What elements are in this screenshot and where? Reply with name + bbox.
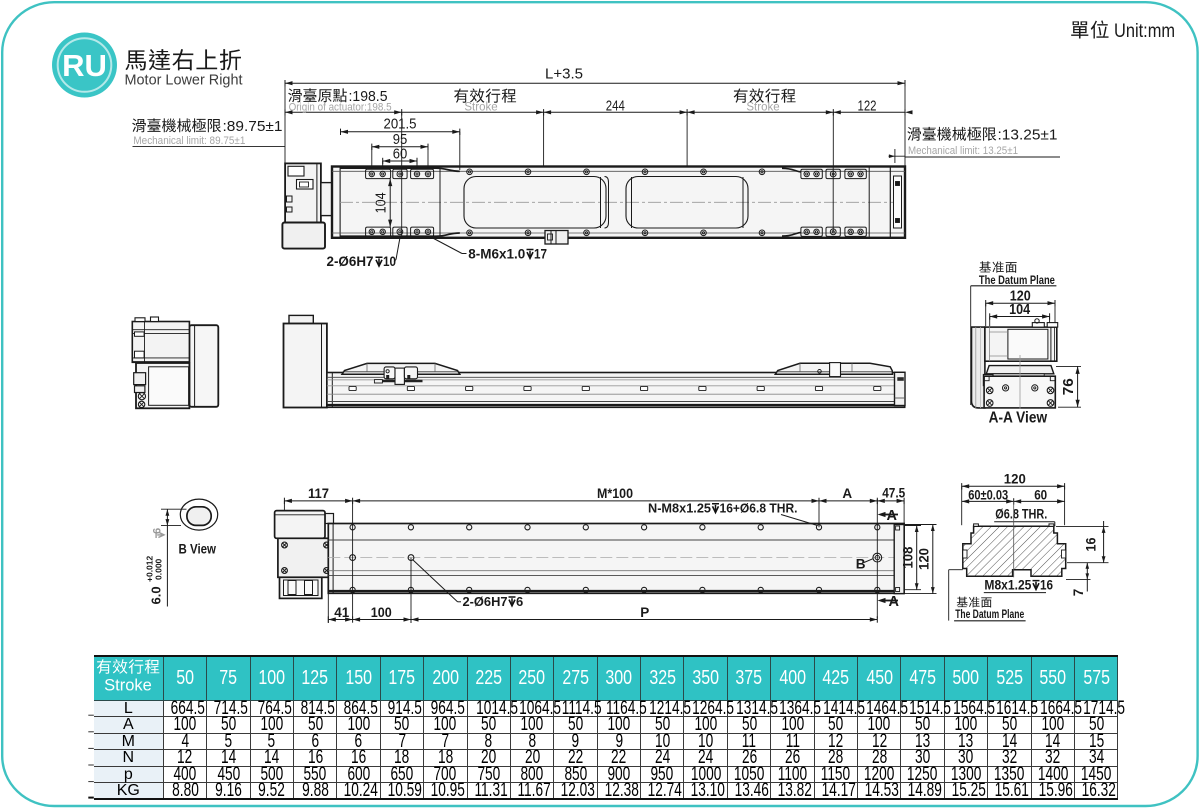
- svg-text:8-M6x1.0: 8-M6x1.0: [468, 246, 525, 261]
- svg-text:0.000: 0.000: [154, 558, 164, 580]
- svg-text:117: 117: [308, 486, 329, 501]
- svg-text:M8x1.25: M8x1.25: [984, 577, 1031, 592]
- svg-text:L+3.5: L+3.5: [545, 66, 583, 83]
- svg-text:RU: RU: [62, 48, 107, 83]
- svg-text:100: 100: [371, 605, 392, 620]
- svg-text:108: 108: [899, 546, 915, 568]
- svg-text:16+Ø6.8 THR.: 16+Ø6.8 THR.: [720, 501, 798, 516]
- svg-text:The Datum Plane: The Datum Plane: [979, 273, 1055, 287]
- svg-text:A-A View: A-A View: [989, 410, 1048, 427]
- svg-text:60±0.03: 60±0.03: [968, 487, 1008, 502]
- svg-text:120: 120: [916, 548, 932, 570]
- svg-text:Unit:mm: Unit:mm: [1114, 20, 1175, 42]
- svg-text:6: 6: [516, 594, 523, 609]
- svg-text:16: 16: [1040, 577, 1053, 592]
- svg-text:A: A: [842, 486, 852, 501]
- svg-text:P: P: [640, 605, 649, 620]
- svg-text:A: A: [887, 508, 898, 524]
- svg-text:122: 122: [858, 98, 877, 115]
- svg-text::89.75±1: :89.75±1: [223, 118, 283, 135]
- svg-text:Stroke: Stroke: [746, 102, 779, 114]
- svg-text:6: 6: [152, 528, 164, 534]
- svg-text:104: 104: [372, 192, 389, 213]
- svg-text:7: 7: [1071, 589, 1086, 597]
- svg-text:47.5: 47.5: [882, 486, 905, 501]
- svg-text:60: 60: [1034, 487, 1047, 502]
- svg-text:6.0: 6.0: [149, 586, 164, 604]
- svg-text:Mechanical limit: 89.75±1: Mechanical limit: 89.75±1: [133, 135, 245, 147]
- svg-text:17: 17: [534, 246, 547, 261]
- svg-text:N-M8x1.25: N-M8x1.25: [648, 501, 711, 516]
- svg-text:Origin of actuator:198.5: Origin of actuator:198.5: [289, 102, 392, 114]
- svg-text:Stroke: Stroke: [104, 677, 152, 695]
- svg-text:Motor Lower Right: Motor Lower Right: [125, 72, 244, 89]
- svg-text:Stroke: Stroke: [464, 102, 497, 114]
- svg-text:104: 104: [1009, 302, 1030, 318]
- svg-text:Mechanical limit: 13.25±1: Mechanical limit: 13.25±1: [908, 145, 1018, 157]
- svg-text:76: 76: [1061, 378, 1077, 395]
- svg-text::13.25±1: :13.25±1: [998, 127, 1058, 144]
- svg-text:244: 244: [606, 98, 625, 115]
- svg-text:A: A: [889, 594, 900, 610]
- svg-text:10: 10: [383, 254, 396, 269]
- svg-text:16: 16: [1084, 537, 1099, 551]
- svg-text:2-Ø6H7: 2-Ø6H7: [327, 254, 374, 269]
- svg-text:120: 120: [1004, 471, 1026, 487]
- svg-text:B View: B View: [179, 542, 217, 557]
- svg-text:B: B: [856, 557, 866, 572]
- svg-text:60: 60: [393, 145, 408, 162]
- svg-text:M*100: M*100: [597, 486, 633, 501]
- svg-text:The Datum Plane: The Datum Plane: [955, 607, 1024, 621]
- svg-text:Ø6.8 THR.: Ø6.8 THR.: [995, 506, 1047, 521]
- svg-text:41: 41: [334, 605, 349, 620]
- svg-text:2-Ø6H7: 2-Ø6H7: [463, 594, 508, 609]
